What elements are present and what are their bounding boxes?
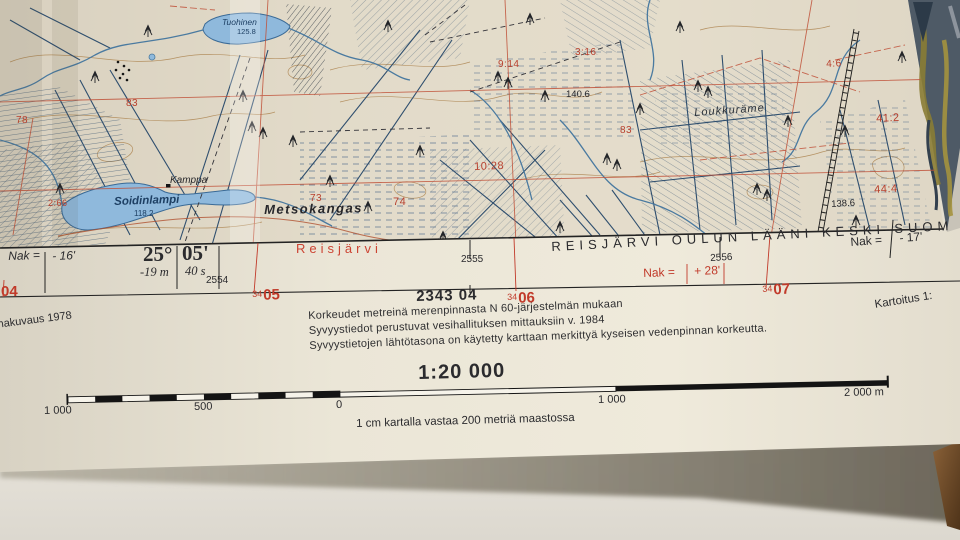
map-label-red: 4:6 [826, 59, 842, 70]
map-label-spot-height: 140.6 [566, 90, 590, 100]
map-label-red: 41:2 [876, 113, 900, 125]
scale-tick-label: 2 000 m [844, 387, 884, 399]
nak-right-label: Nak = [850, 234, 882, 248]
grid-ref-big: 04 [1, 283, 18, 300]
map-label-soidinlampi: Soidinlampi [114, 195, 180, 209]
scale-tick-label: 1 000 [44, 405, 72, 417]
map-label-lake-name: Tuohinen [222, 18, 257, 27]
grid-value-2555: 2555 [461, 255, 483, 265]
map-label-lake-elev: 125.8 [237, 28, 256, 36]
grid-ref-3405: 3405 [252, 287, 280, 304]
map-label-red: 83 [620, 126, 632, 136]
map-label-spot-height: 138.6 [831, 199, 855, 210]
grid-value-2554: 2554 [206, 276, 228, 286]
scale-tick-label: 0 [336, 400, 342, 411]
sheet-name-red: Reisjärvi [296, 242, 382, 255]
map-label-red: 3:16 [575, 48, 596, 58]
longitude-minutes: 05' [182, 243, 209, 264]
scale-tick-label: 500 [194, 402, 213, 413]
grid-ref-big: 07 [773, 281, 791, 299]
map-photo: 78 83 2:66 73 74 10:28 9:14 3:16 83 4:6 … [0, 0, 960, 540]
grid-ref-3407: 3407 [762, 282, 791, 299]
grid-ref-small: 34 [252, 289, 262, 299]
map-label-red: 83 [126, 99, 138, 109]
scale-ratio: 1:20 000 [418, 361, 505, 383]
map-label-red: 44:4 [874, 184, 898, 196]
map-label-red: 9:14 [498, 60, 519, 70]
nak-mid-label: Nak = [643, 266, 675, 279]
nak-right-value: - 17' [899, 230, 923, 244]
map-label-red: 2:66 [48, 199, 68, 208]
nak-left-value: - 16' [52, 249, 75, 262]
grid-ref-3404: 3404 [0, 284, 18, 300]
longitude-degrees: 25° [143, 244, 172, 265]
map-label-red: 10:28 [474, 161, 504, 173]
map-label-metsokangas: Metsokangas [264, 201, 363, 216]
map-label-red: 74 [393, 197, 406, 208]
nak-left-label: Nak = [8, 249, 40, 262]
map-label-kamppa: Kamppa [170, 176, 207, 186]
scale-tick-label: 1 000 [598, 394, 626, 406]
map-label-lake-elev: 118.2 [134, 210, 153, 218]
map-label-red: 78 [16, 116, 28, 126]
longitude-correction-s: 40 s [185, 265, 206, 278]
longitude-correction-m: -19 m [140, 266, 169, 279]
nak-mid-value: + 28' [694, 264, 720, 277]
sheet-number: 2343 04 [416, 287, 478, 304]
grid-ref-big: 05 [263, 286, 280, 303]
